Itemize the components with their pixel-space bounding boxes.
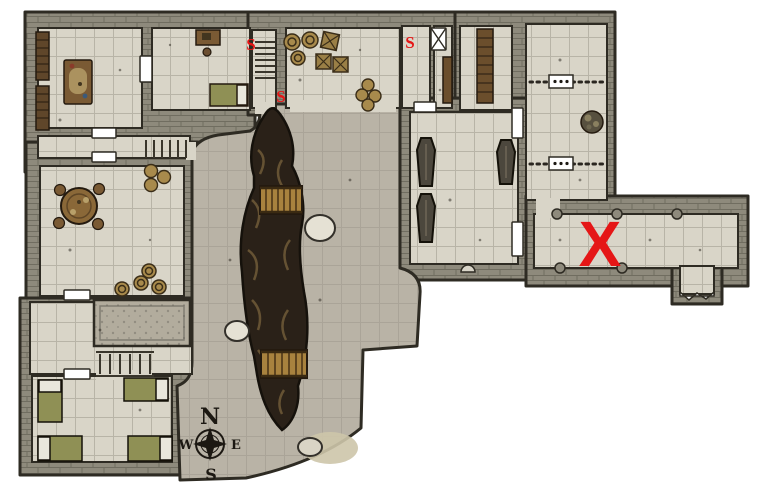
portcullis-door-icon	[431, 28, 446, 50]
south-bridge	[261, 350, 307, 378]
door-icon	[140, 56, 152, 82]
chair-icon	[93, 219, 104, 230]
bed-icon	[38, 380, 62, 422]
secret-door-marker: S	[405, 33, 414, 52]
door-icon	[512, 222, 523, 256]
north-bridge	[260, 186, 302, 214]
bed-icon	[38, 436, 82, 461]
boulder-icon	[305, 215, 335, 241]
round-table	[54, 184, 105, 230]
door-icon	[64, 369, 90, 379]
rubble-ornament	[581, 111, 603, 133]
pillar-icon	[672, 209, 682, 219]
compass-west-label: W	[178, 438, 194, 453]
rubble-platform	[94, 300, 190, 346]
chair-icon	[54, 218, 65, 229]
door-icon	[64, 290, 90, 300]
bedroom-bed	[210, 84, 248, 106]
boulder-icon	[225, 321, 249, 341]
dungeon-map: S S S X N W E S	[0, 0, 769, 491]
chair-icon	[94, 184, 105, 195]
dungeon-map-canvas: S S S X N W E S	[0, 0, 769, 491]
bed-icon	[124, 378, 168, 401]
pillar-icon	[552, 209, 562, 219]
pillar-icon	[555, 263, 565, 273]
south-alcove-floor	[680, 266, 714, 294]
compass-east-label: E	[231, 438, 241, 453]
door-icon	[414, 102, 436, 112]
chair-icon	[55, 185, 66, 196]
door-icon	[92, 152, 116, 162]
compass-north-label: N	[200, 404, 220, 430]
secret-door-marker: S	[246, 35, 255, 54]
wall-niche	[461, 265, 475, 272]
east-corridor-floor	[534, 214, 738, 268]
compass-south-label: S	[205, 465, 217, 484]
north-stairs	[255, 42, 275, 78]
stool-icon	[203, 48, 211, 56]
x-mark: X	[579, 208, 622, 280]
boulder-icon	[298, 438, 322, 456]
work-table	[64, 60, 92, 104]
secret-door-marker: S	[276, 87, 285, 106]
door-icon	[512, 108, 523, 138]
bed-icon	[128, 436, 172, 461]
door-icon	[92, 128, 116, 138]
